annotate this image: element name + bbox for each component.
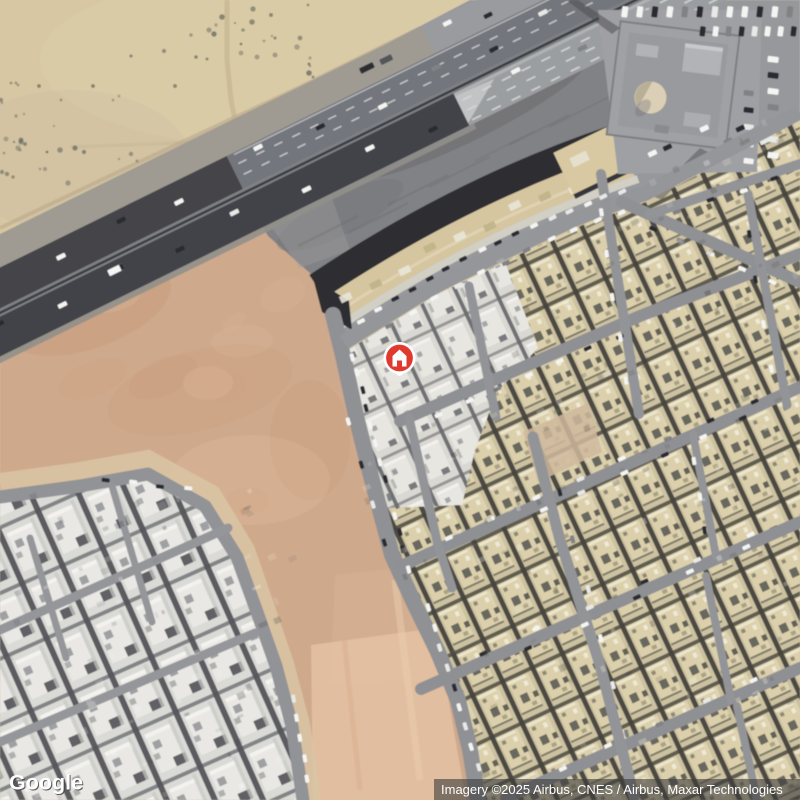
svg-text:Google: Google — [9, 771, 83, 795]
svg-text:Imagery ©2025 Airbus, CNES / A: Imagery ©2025 Airbus, CNES / Airbus, Max… — [441, 782, 783, 797]
